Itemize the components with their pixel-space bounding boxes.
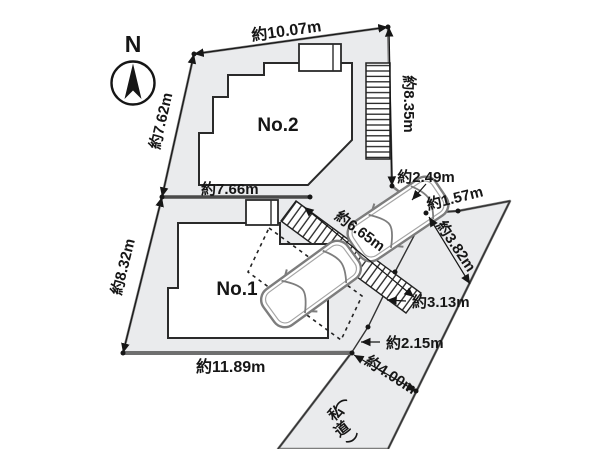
dim-left-lower: 約8.32m [107, 237, 138, 297]
site-plan-drawing: N 約10.07m 約7.62m 約8.35m 約7.66m 約8.32m 約1… [0, 0, 600, 449]
side-steps [366, 63, 390, 159]
building-no1-porch [246, 200, 278, 225]
dim-frontage-middle: 約3.13m [412, 293, 470, 311]
compass-n-label: N [125, 31, 142, 57]
dim-frontage-lower: 約2.15m [386, 334, 444, 352]
dim-bottom: 約11.89m [196, 357, 265, 376]
dim-right: 約8.35m [400, 75, 418, 133]
site-plan-page: N 約10.07m 約7.62m 約8.35m 約7.66m 約8.32m 約1… [0, 0, 600, 449]
building-no1-label: No.1 [216, 279, 258, 300]
building-no2-label: No.2 [257, 115, 298, 136]
building-no2-porch [299, 44, 341, 71]
dim-division: 約7.66m [201, 180, 259, 198]
compass: N [112, 31, 155, 105]
dim-corner-northeast: 約2.49m [397, 168, 455, 186]
dim-left-upper: 約7.62m [146, 91, 176, 151]
